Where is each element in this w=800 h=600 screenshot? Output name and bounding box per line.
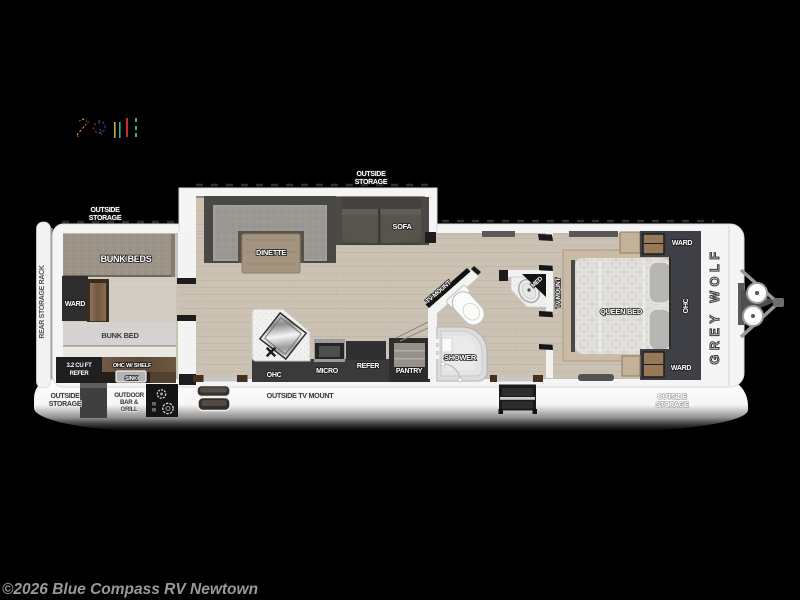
svg-text:REFER: REFER: [357, 363, 379, 370]
svg-text:OUTSIDE: OUTSIDE: [50, 393, 80, 400]
svg-text:BUNK BEDS: BUNK BEDS: [101, 254, 152, 264]
svg-text:REAR STORAGE RACK: REAR STORAGE RACK: [39, 265, 46, 339]
svg-text:OUTSIDE: OUTSIDE: [356, 171, 386, 178]
svg-text:STORAGE: STORAGE: [49, 401, 82, 408]
svg-text:BAR &: BAR &: [120, 399, 139, 406]
svg-text:OHC: OHC: [683, 298, 690, 313]
svg-text:OHC W/ SHELF: OHC W/ SHELF: [113, 363, 152, 369]
svg-text:OHC: OHC: [267, 372, 282, 379]
svg-text:DINETTE: DINETTE: [256, 248, 286, 257]
svg-text:WARD: WARD: [65, 301, 85, 308]
svg-text:GRILL: GRILL: [120, 406, 138, 413]
svg-text:GREY WOLF: GREY WOLF: [708, 248, 722, 365]
svg-text:BUNK BED: BUNK BED: [101, 331, 139, 340]
svg-text:PANTRY: PANTRY: [396, 368, 423, 375]
svg-text:QUEEN BED: QUEEN BED: [600, 307, 643, 316]
svg-text:STORAGE: STORAGE: [355, 179, 388, 186]
svg-text:SHOWER: SHOWER: [444, 353, 477, 362]
svg-text:SOFA: SOFA: [392, 222, 412, 231]
svg-text:WARD: WARD: [672, 240, 692, 247]
svg-text:STORAGE: STORAGE: [89, 215, 122, 222]
svg-text:OUTSIDE: OUTSIDE: [90, 207, 120, 214]
svg-text:3.2 CU FT: 3.2 CU FT: [67, 363, 93, 369]
svg-text:OUTSIDE TV MOUNT: OUTSIDE TV MOUNT: [267, 391, 335, 400]
svg-text:WARD: WARD: [671, 365, 691, 372]
svg-text:TV MOUNT: TV MOUNT: [555, 278, 562, 308]
svg-text:REFER: REFER: [70, 371, 90, 377]
svg-text:MICRO: MICRO: [316, 368, 339, 375]
svg-text:STORAGE: STORAGE: [656, 402, 689, 409]
svg-text:SINK: SINK: [125, 376, 137, 382]
svg-text:©2026 Blue Compass RV Newtown: ©2026 Blue Compass RV Newtown: [2, 581, 258, 598]
svg-text:OUTSIDE: OUTSIDE: [657, 394, 687, 401]
svg-text:OUTDOOR: OUTDOOR: [114, 392, 144, 399]
